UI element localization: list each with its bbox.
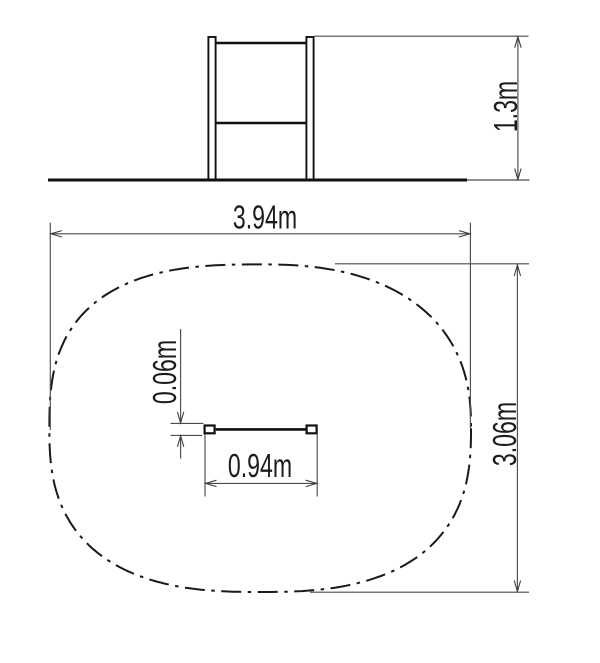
svg-text:1.3m: 1.3m (488, 81, 525, 132)
svg-text:3.06m: 3.06m (487, 402, 524, 466)
svg-text:3.94m: 3.94m (233, 200, 297, 237)
svg-text:0.06m: 0.06m (147, 340, 184, 404)
svg-text:0.94m: 0.94m (228, 448, 292, 485)
